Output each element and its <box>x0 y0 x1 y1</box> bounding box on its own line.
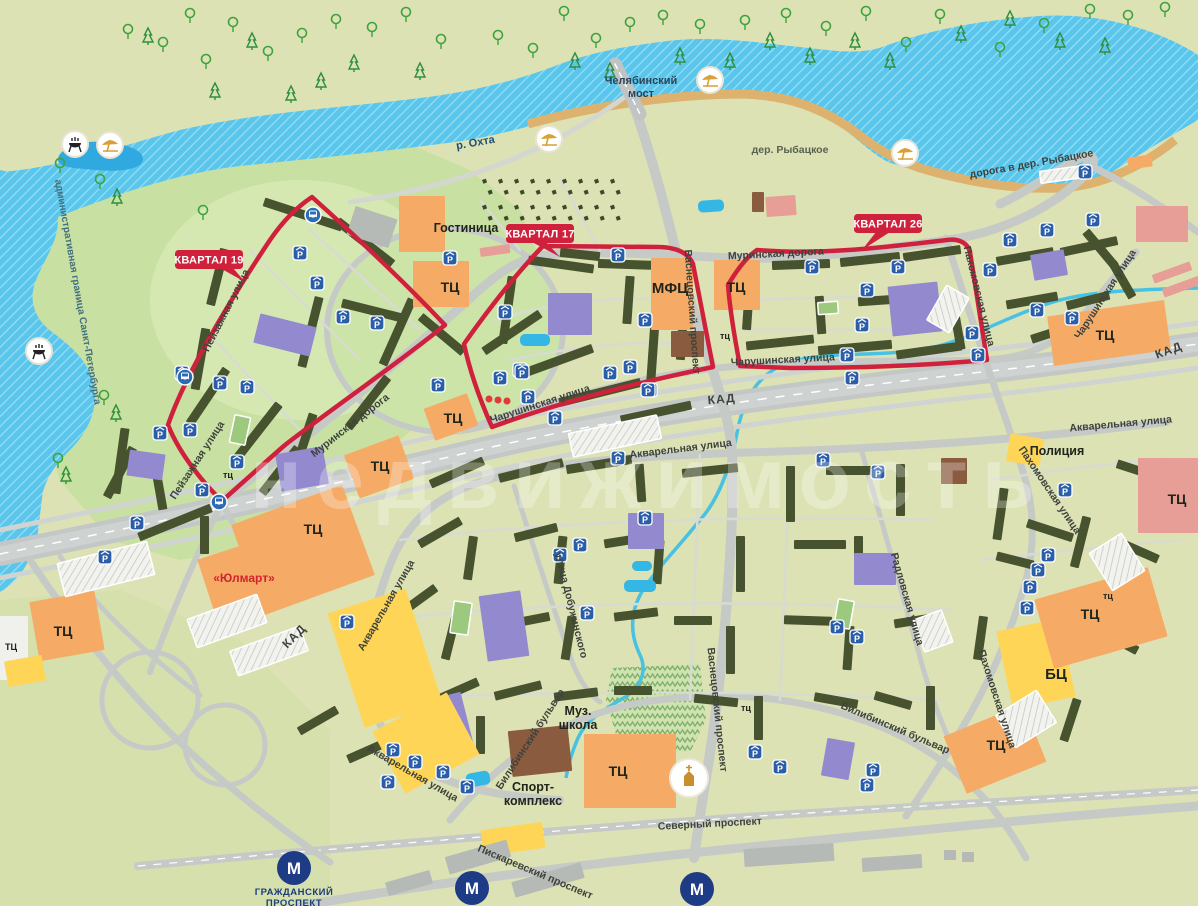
svg-text:Р: Р <box>820 457 826 467</box>
svg-text:М: М <box>465 879 479 898</box>
svg-text:Р: Р <box>157 430 163 440</box>
sales-point-dot <box>495 397 502 404</box>
svg-text:Р: Р <box>969 330 975 340</box>
parking-icon: Р <box>1065 311 1079 325</box>
parking-icon: Р <box>971 348 985 362</box>
parking-icon: Р <box>871 465 885 479</box>
bus-stop-icon <box>177 369 193 385</box>
residential-building <box>786 466 795 522</box>
svg-text:Р: Р <box>435 382 441 392</box>
parking-icon: Р <box>1041 548 1055 562</box>
residential-building <box>794 540 846 549</box>
map-label: КАД <box>707 391 736 407</box>
map-label: комплекс <box>504 794 562 808</box>
sales-point-dot <box>504 398 511 405</box>
svg-text:Р: Р <box>849 375 855 385</box>
parking-icon: Р <box>983 263 997 277</box>
svg-text:Р: Р <box>627 364 633 374</box>
pool <box>520 334 550 346</box>
svg-text:Р: Р <box>1007 237 1013 247</box>
svg-text:Р: Р <box>217 380 223 390</box>
svg-text:Р: Р <box>464 784 470 794</box>
map-label: дер. Рыбацкое <box>752 144 829 156</box>
svg-text:Р: Р <box>244 384 250 394</box>
sales-point-dot <box>486 396 493 403</box>
svg-text:Р: Р <box>834 624 840 634</box>
residential-building <box>614 686 652 695</box>
bus-stop-icon <box>211 494 227 510</box>
map-label: ТЦ <box>987 737 1007 753</box>
svg-text:Р: Р <box>607 370 613 380</box>
building <box>962 852 974 862</box>
svg-text:Р: Р <box>844 352 850 362</box>
svg-text:Р: Р <box>870 767 876 777</box>
svg-text:Р: Р <box>615 252 621 262</box>
beach-icon <box>892 140 918 166</box>
brown-building <box>941 458 967 484</box>
parking-icon: Р <box>340 615 354 629</box>
map-label: тц <box>741 703 751 713</box>
bus-stop-icon <box>305 207 321 223</box>
social-building <box>126 450 165 481</box>
metro-icon: М <box>455 871 489 905</box>
parking-icon: Р <box>230 455 244 469</box>
svg-text:Р: Р <box>645 387 651 397</box>
parking-icon: Р <box>1003 233 1017 247</box>
sports-field <box>450 601 472 635</box>
quarter-callout-label: КВАРТАЛ 17 <box>505 229 574 241</box>
parking-icon: Р <box>381 775 395 789</box>
parking-icon: Р <box>443 251 457 265</box>
parking-icon: Р <box>431 378 445 392</box>
metro-icon: М <box>680 872 714 906</box>
metro-station-label: ПРОСПЕКТ <box>266 898 322 906</box>
parking-icon: Р <box>860 778 874 792</box>
parking-icon: Р <box>1086 213 1100 227</box>
parking-icon: Р <box>213 376 227 390</box>
map-label: тц <box>223 470 233 480</box>
parking-icon: Р <box>493 371 507 385</box>
svg-text:Р: Р <box>584 610 590 620</box>
svg-text:Р: Р <box>642 317 648 327</box>
svg-text:Р: Р <box>987 267 993 277</box>
parking-icon: Р <box>573 538 587 552</box>
map-label: мост <box>628 88 655 100</box>
beach-icon <box>97 132 123 158</box>
svg-text:Р: Р <box>854 634 860 644</box>
residential-building <box>200 516 209 554</box>
parking-icon: Р <box>773 760 787 774</box>
parking-icon: Р <box>845 371 859 385</box>
parking-icon: Р <box>1023 580 1037 594</box>
map-label: ТЦ <box>441 279 461 295</box>
svg-text:Р: Р <box>552 415 558 425</box>
building <box>944 850 956 860</box>
parking-icon: Р <box>805 260 819 274</box>
parking-icon: Р <box>293 246 307 260</box>
svg-text:Р: Р <box>1024 605 1030 615</box>
parking-icon: Р <box>1040 223 1054 237</box>
parking-icon: Р <box>130 516 144 530</box>
parking-icon: Р <box>816 453 830 467</box>
map-label: ТЦ <box>609 763 629 779</box>
parking-icon: Р <box>641 383 655 397</box>
svg-text:Р: Р <box>134 520 140 530</box>
church-icon <box>670 759 708 797</box>
quarter-callout-label: КВАРТАЛ 26 <box>853 219 922 231</box>
svg-text:Р: Р <box>577 542 583 552</box>
map-label: тц <box>1103 591 1113 601</box>
svg-text:Р: Р <box>187 427 193 437</box>
map-label: ТЦ <box>1081 606 1101 622</box>
svg-text:Р: Р <box>1090 217 1096 227</box>
beach-icon <box>536 126 562 152</box>
parking-icon: Р <box>1020 601 1034 615</box>
parking-icon: Р <box>638 313 652 327</box>
residential-building <box>674 616 712 625</box>
map-label: БЦ <box>1045 666 1067 683</box>
svg-text:Р: Р <box>344 619 350 629</box>
svg-text:Р: Р <box>297 250 303 260</box>
metro-station-label: ГРАЖДАНСКИЙ <box>255 886 334 898</box>
parking-icon: Р <box>1031 563 1045 577</box>
svg-text:Р: Р <box>1034 307 1040 317</box>
svg-text:Р: Р <box>234 459 240 469</box>
parking-icon: Р <box>866 763 880 777</box>
pool <box>698 199 725 213</box>
residential-building <box>476 716 485 754</box>
parking-icon: Р <box>830 620 844 634</box>
existing-building <box>765 195 796 217</box>
parking-icon: Р <box>1078 165 1092 179</box>
novaya-okhta-masterplan-svg: РРРРРРРРРРРРРРРРРРРРРРРРРРРРРРРРРРРРРРРР… <box>0 0 1198 906</box>
parking-icon: Р <box>336 310 350 324</box>
parking-icon: Р <box>603 366 617 380</box>
svg-text:Р: Р <box>199 487 205 497</box>
svg-text:Р: Р <box>875 469 881 479</box>
parking-icon: Р <box>850 630 864 644</box>
svg-text:Р: Р <box>1045 552 1051 562</box>
parking-icon: Р <box>515 365 529 379</box>
svg-text:Р: Р <box>895 264 901 274</box>
svg-text:Р: Р <box>864 782 870 792</box>
svg-text:Р: Р <box>1069 315 1075 325</box>
parking-icon: Р <box>498 305 512 319</box>
svg-text:Р: Р <box>777 764 783 774</box>
svg-text:Р: Р <box>440 769 446 779</box>
parking-icon: Р <box>240 380 254 394</box>
map-label: ТЦ <box>1096 327 1116 343</box>
parking-icon: Р <box>436 765 450 779</box>
svg-text:Р: Р <box>1035 567 1041 577</box>
parking-icon: Р <box>840 348 854 362</box>
svg-text:Р: Р <box>642 515 648 525</box>
map-label: школа <box>559 718 599 732</box>
map-label: тц <box>720 331 730 341</box>
parking-icon: Р <box>580 606 594 620</box>
svg-text:Р: Р <box>809 264 815 274</box>
svg-text:Р: Р <box>752 749 758 759</box>
parking-icon: Р <box>460 780 474 794</box>
brown-building <box>752 192 764 212</box>
svg-text:Р: Р <box>1082 169 1088 179</box>
parking-icon: Р <box>965 326 979 340</box>
svg-text:Р: Р <box>497 375 503 385</box>
svg-text:Р: Р <box>859 322 865 332</box>
residential-building <box>926 686 935 730</box>
commercial-building <box>584 734 676 808</box>
residential-building <box>754 696 763 740</box>
svg-text:Р: Р <box>519 369 525 379</box>
parking-icon: Р <box>748 745 762 759</box>
bbq-icon <box>26 338 52 364</box>
map-label: Полиция <box>1030 444 1085 458</box>
parking-icon: Р <box>891 260 905 274</box>
map-label: Гостиница <box>434 221 500 235</box>
parking-icon: Р <box>638 511 652 525</box>
svg-text:Р: Р <box>864 287 870 297</box>
parking-icon: Р <box>623 360 637 374</box>
parking-icon: Р <box>98 550 112 564</box>
existing-building <box>1136 206 1188 242</box>
svg-text:М: М <box>690 880 704 899</box>
parking-icon: Р <box>153 426 167 440</box>
quarter-callout-label: КВАРТАЛ 19 <box>174 255 243 267</box>
residential-building <box>736 536 745 592</box>
map-label: ТЦ <box>727 279 747 295</box>
map-label: ТЦ <box>1168 491 1188 507</box>
parking-icon: Р <box>195 483 209 497</box>
svg-text:Р: Р <box>102 554 108 564</box>
map-label: Муз. <box>565 704 592 718</box>
residential-building <box>726 626 735 674</box>
map-label: «Юлмарт» <box>213 571 275 585</box>
svg-text:Р: Р <box>615 455 621 465</box>
svg-text:Р: Р <box>1062 487 1068 497</box>
parking-icon: Р <box>548 411 562 425</box>
parking-icon: Р <box>860 283 874 297</box>
parking-icon: Р <box>611 451 625 465</box>
social-building <box>548 293 592 335</box>
masterplan-map: РРРРРРРРРРРРРРРРРРРРРРРРРРРРРРРРРРРРРРРР… <box>0 0 1198 906</box>
parking-icon: Р <box>855 318 869 332</box>
map-label: ТЦ <box>304 521 324 537</box>
residential-building <box>784 615 832 626</box>
svg-text:Р: Р <box>975 352 981 362</box>
parking-icon: Р <box>183 423 197 437</box>
bbq-icon <box>62 131 88 157</box>
svg-text:Р: Р <box>447 255 453 265</box>
svg-text:М: М <box>287 859 301 878</box>
svg-text:Р: Р <box>385 779 391 789</box>
map-label: ТЦ <box>5 642 17 652</box>
pool <box>632 561 652 571</box>
map-label: ТЦ <box>54 623 74 639</box>
svg-text:Р: Р <box>340 314 346 324</box>
map-label: Челябинский <box>605 75 678 87</box>
parking-icon: Р <box>611 248 625 262</box>
svg-text:Р: Р <box>1027 584 1033 594</box>
map-label: Спорт- <box>512 780 554 794</box>
residential-building <box>896 464 905 516</box>
svg-text:Р: Р <box>502 309 508 319</box>
svg-text:Р: Р <box>374 320 380 330</box>
sports-field <box>818 301 839 314</box>
map-label: ТЦ <box>444 410 464 426</box>
map-label: МФЦ <box>652 280 688 297</box>
beach-icon <box>697 67 723 93</box>
svg-text:Р: Р <box>314 280 320 290</box>
map-label: ТЦ <box>371 458 391 474</box>
pool <box>624 580 656 592</box>
svg-text:Р: Р <box>1044 227 1050 237</box>
parking-icon: Р <box>370 316 384 330</box>
parking-icon: Р <box>1030 303 1044 317</box>
parking-icon: Р <box>310 276 324 290</box>
